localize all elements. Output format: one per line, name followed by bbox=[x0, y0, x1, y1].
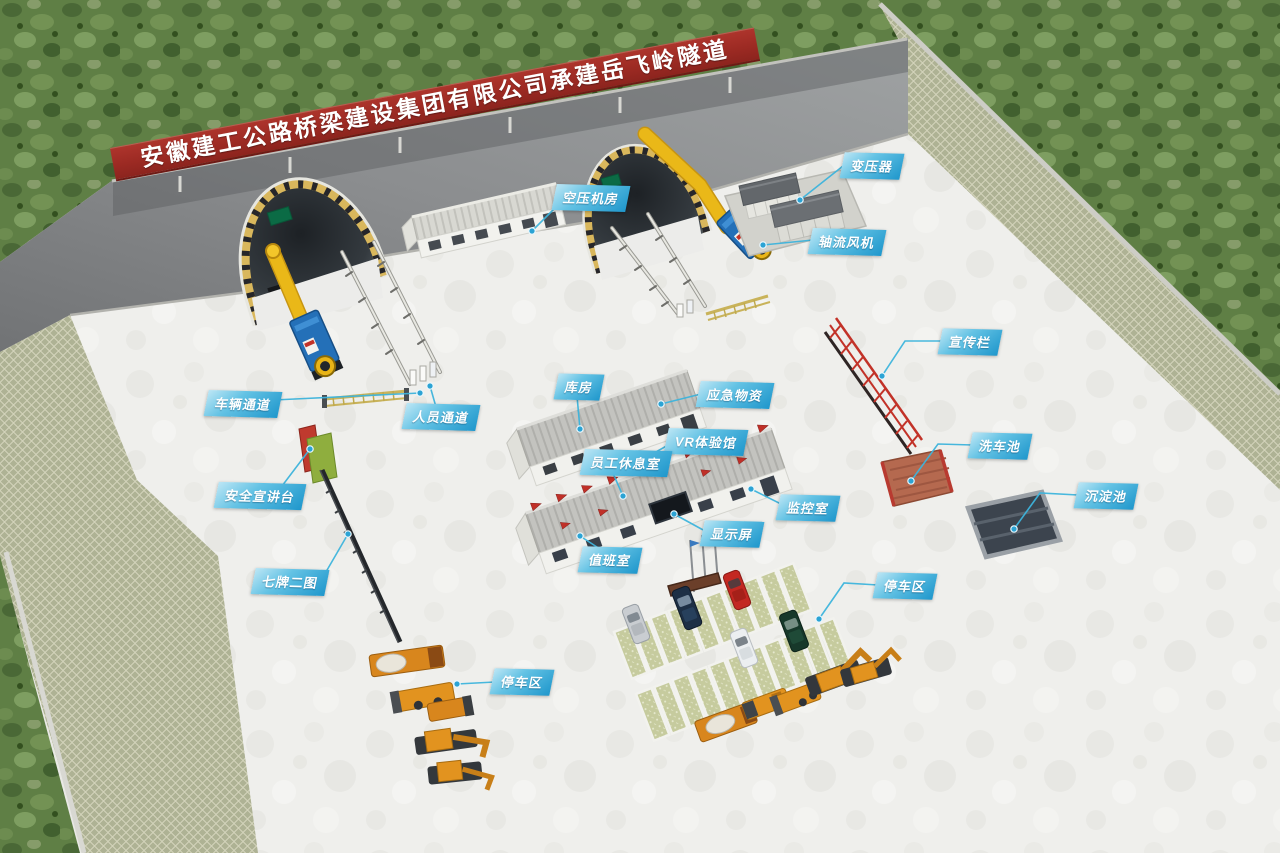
site-3d-scene bbox=[0, 0, 1280, 853]
label-parking-area-left: 停车区 bbox=[490, 668, 555, 696]
label-warehouse: 库房 bbox=[553, 373, 604, 400]
label-seven-boards-two-maps: 七牌二图 bbox=[251, 568, 330, 596]
label-safety-lecture-platform: 安全宣讲台 bbox=[214, 482, 307, 510]
label-car-wash-pool: 洗车池 bbox=[968, 432, 1033, 460]
label-transformer: 变压器 bbox=[840, 152, 905, 180]
label-parking-area-right: 停车区 bbox=[873, 572, 938, 600]
label-display-screen: 显示屏 bbox=[700, 520, 765, 548]
label-monitoring-room: 监控室 bbox=[776, 494, 841, 522]
label-emergency-supplies: 应急物资 bbox=[696, 381, 775, 409]
construction-site-rendering: 安徽建工公路桥梁建设集团有限公司承建岳飞岭隧道 空压机房 变压器 轴流风机 车辆… bbox=[0, 0, 1280, 853]
label-duty-room: 值班室 bbox=[578, 546, 643, 574]
label-personnel-passage: 人员通道 bbox=[402, 403, 481, 431]
label-staff-lounge: 员工休息室 bbox=[580, 449, 673, 477]
label-vehicle-passage: 车辆通道 bbox=[204, 390, 283, 418]
label-axial-fan: 轴流风机 bbox=[808, 228, 887, 256]
label-vr-experience-hall: VR体验馆 bbox=[664, 428, 749, 456]
label-publicity-board: 宣传栏 bbox=[938, 328, 1003, 356]
label-air-compressor-room: 空压机房 bbox=[552, 184, 631, 212]
label-sedimentation-pool: 沉淀池 bbox=[1074, 482, 1139, 510]
